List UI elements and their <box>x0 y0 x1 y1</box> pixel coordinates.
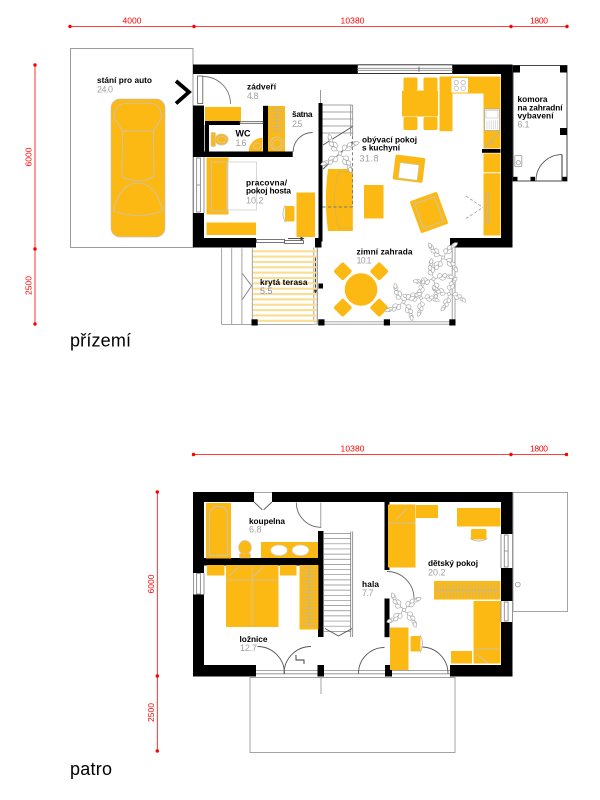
svg-text:10380: 10380 <box>341 16 365 26</box>
svg-text:12.7: 12.7 <box>240 643 257 653</box>
svg-text:4.8: 4.8 <box>247 91 259 101</box>
svg-text:4000: 4000 <box>123 16 142 26</box>
svg-text:patro: patro <box>70 759 112 779</box>
svg-text:24.0: 24.0 <box>97 85 113 95</box>
svg-text:šatna: šatna <box>292 109 313 119</box>
svg-text:pokoj hosta: pokoj hosta <box>246 186 291 196</box>
svg-text:7.7: 7.7 <box>362 588 374 598</box>
svg-text:5.5: 5.5 <box>260 286 273 296</box>
svg-text:2.5: 2.5 <box>292 119 303 129</box>
svg-text:6000: 6000 <box>24 147 34 166</box>
svg-text:10.2: 10.2 <box>246 196 264 206</box>
svg-text:6.8: 6.8 <box>249 525 262 535</box>
svg-text:WC: WC <box>236 129 252 139</box>
svg-text:10380: 10380 <box>341 444 365 454</box>
svg-text:20.2: 20.2 <box>428 568 446 578</box>
svg-text:6.1: 6.1 <box>518 120 530 130</box>
svg-text:s kuchyní: s kuchyní <box>362 143 401 153</box>
svg-text:stání pro auto: stání pro auto <box>97 75 152 85</box>
svg-text:1800: 1800 <box>530 16 548 26</box>
svg-text:6000: 6000 <box>146 574 156 593</box>
svg-text:1.6: 1.6 <box>236 138 247 148</box>
svg-text:2500: 2500 <box>24 276 34 295</box>
svg-text:2500: 2500 <box>146 703 156 722</box>
svg-text:31.8: 31.8 <box>360 154 379 164</box>
svg-text:10.1: 10.1 <box>357 256 372 266</box>
svg-text:dětský pokoj: dětský pokoj <box>428 558 478 568</box>
svg-text:zádveří: zádveří <box>247 82 277 92</box>
svg-text:1800: 1800 <box>530 444 548 454</box>
svg-text:přízemí: přízemí <box>70 331 131 351</box>
